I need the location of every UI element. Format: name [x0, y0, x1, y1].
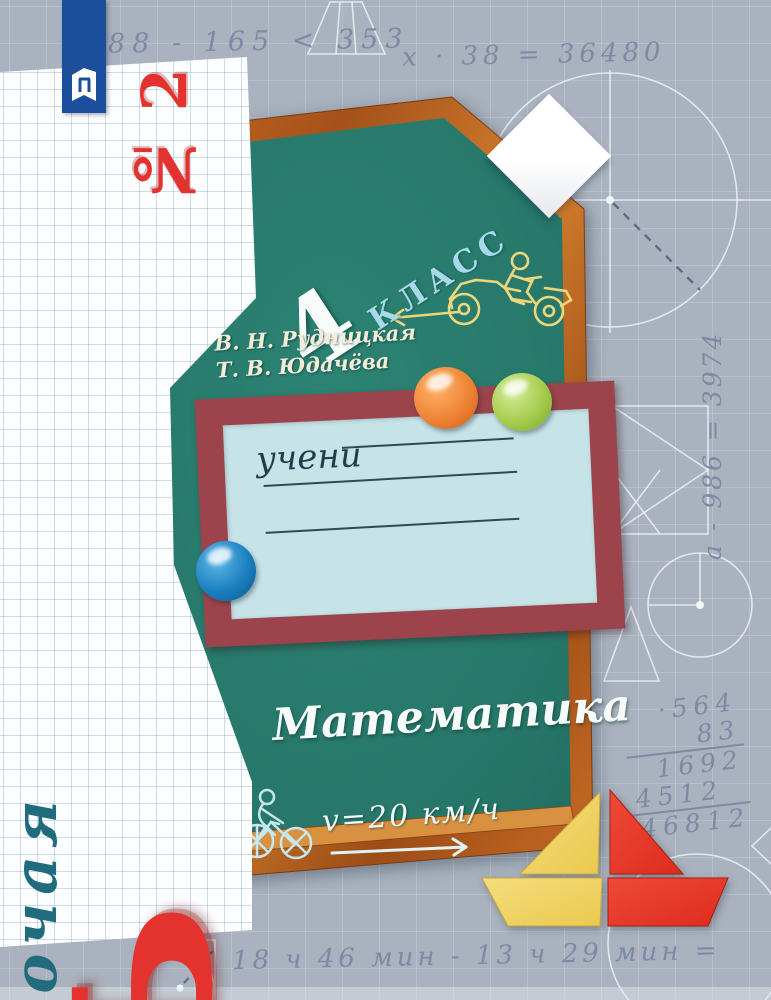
boat-hull-yellow [482, 878, 602, 926]
boat-hull-red [608, 878, 728, 926]
tangram-boat [0, 0, 771, 1000]
boat-sail-yellow [520, 792, 600, 874]
book-cover: 88 - 165 < 353 x · 38 = 36480 a - 986 = … [0, 0, 771, 1000]
boat-sail-red [610, 790, 683, 874]
